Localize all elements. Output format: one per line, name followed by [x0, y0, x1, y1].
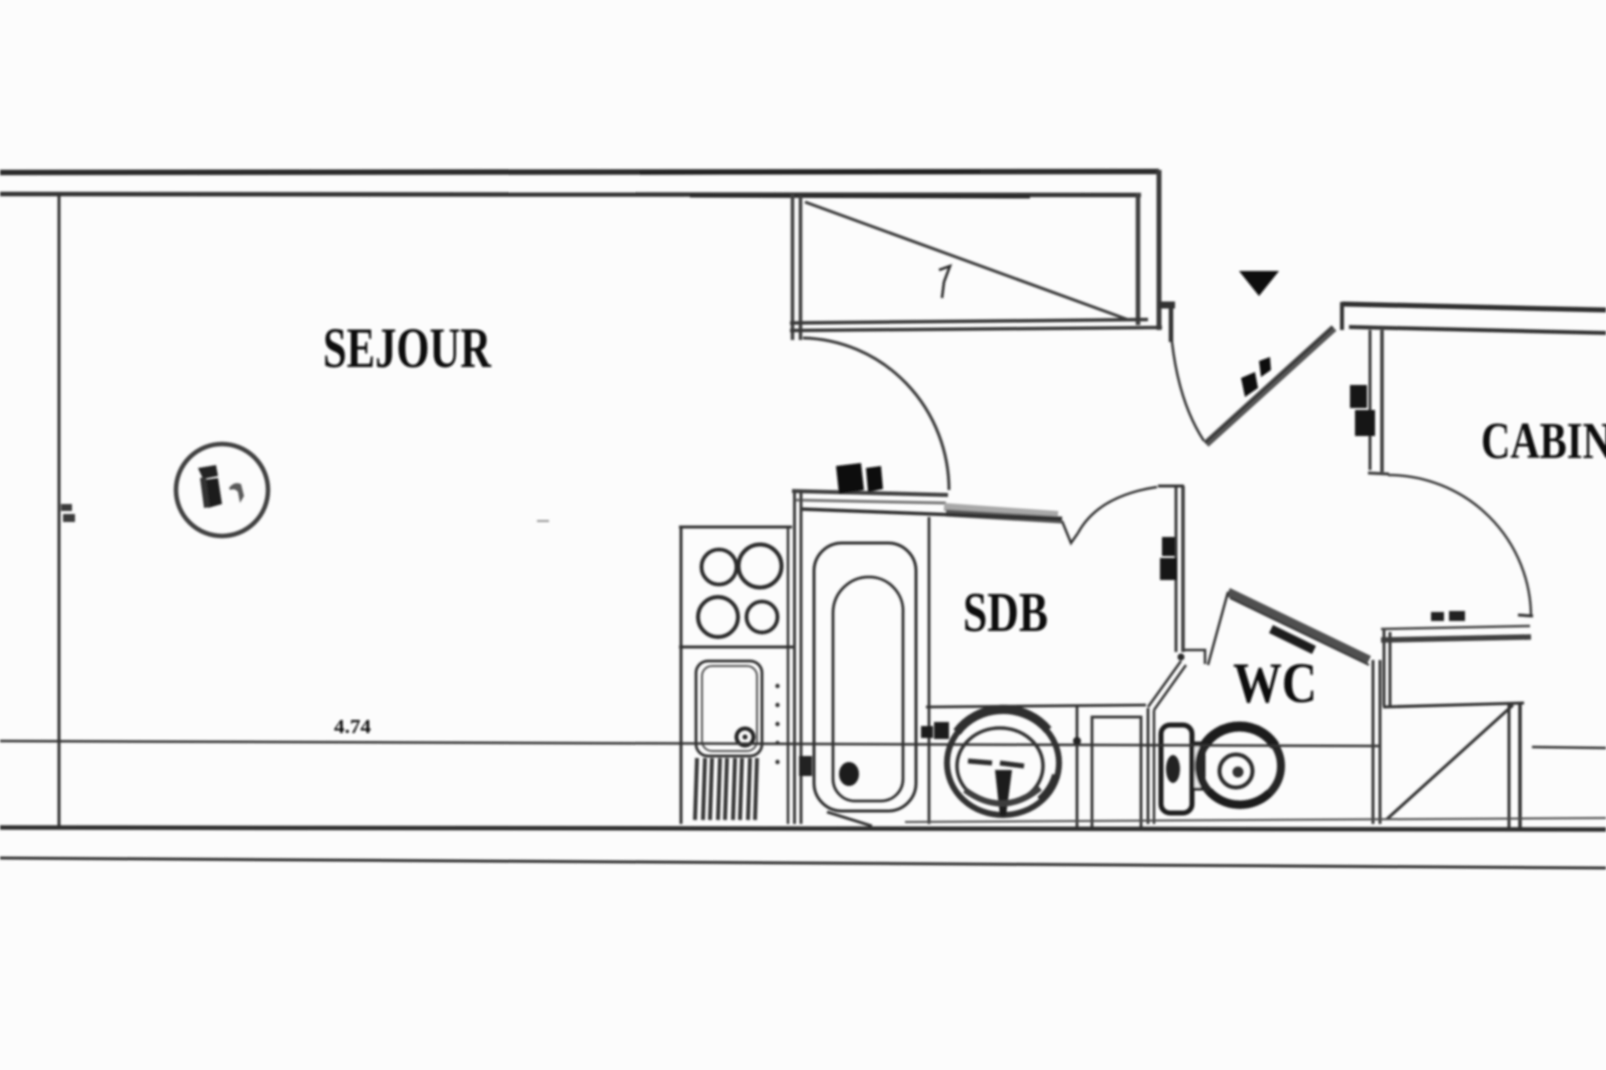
svg-text:CABINE: CABINE [1481, 413, 1606, 470]
svg-text:WC: WC [1233, 652, 1317, 715]
svg-text:SDB: SDB [963, 582, 1048, 644]
svg-text:SEJOUR: SEJOUR [323, 317, 492, 380]
svg-text:4.74: 4.74 [334, 716, 371, 738]
